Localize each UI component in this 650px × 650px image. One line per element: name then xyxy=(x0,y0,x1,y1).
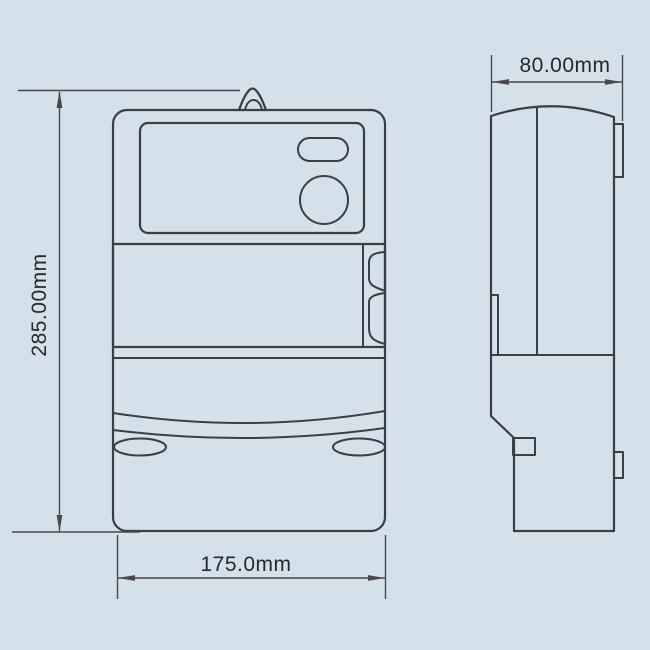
side-latch xyxy=(513,438,535,455)
meter-dimension-drawing: 285.00mm 175.0mm 80.00mm xyxy=(0,0,650,650)
width-arrow-left xyxy=(118,575,135,581)
depth-arrow-right xyxy=(605,79,622,85)
lcd-window xyxy=(298,138,348,161)
cover-curve-bottom xyxy=(113,428,385,438)
depth-arrow-left xyxy=(492,79,509,85)
side-view xyxy=(491,106,623,531)
depth-dimension-label: 80.00mm xyxy=(519,54,610,77)
middle-band xyxy=(113,244,385,347)
width-dimension-label: 175.0mm xyxy=(200,553,291,576)
side-clip-bottom xyxy=(614,452,623,478)
width-arrow-right xyxy=(368,575,385,581)
front-view xyxy=(113,89,385,532)
push-button xyxy=(300,176,348,224)
side-clip-top xyxy=(614,124,623,177)
width-dimension: 175.0mm xyxy=(118,535,386,599)
height-dimension-label: 285.00mm xyxy=(28,253,51,356)
height-arrow-down xyxy=(57,515,63,532)
seal-screw-right xyxy=(333,439,385,456)
seal-screw-left xyxy=(114,439,166,456)
side-outline xyxy=(491,106,614,531)
height-arrow-up xyxy=(57,91,63,108)
seal-tab-lower xyxy=(369,293,385,344)
meter-body-outline xyxy=(113,110,385,531)
height-dimension: 285.00mm xyxy=(12,91,240,533)
seal-tab-upper xyxy=(369,252,385,291)
display-panel xyxy=(140,123,364,233)
cover-curve-top xyxy=(113,411,385,423)
hanger-hook-inner xyxy=(245,100,262,110)
drawing-canvas: 285.00mm 175.0mm 80.00mm xyxy=(0,0,650,650)
